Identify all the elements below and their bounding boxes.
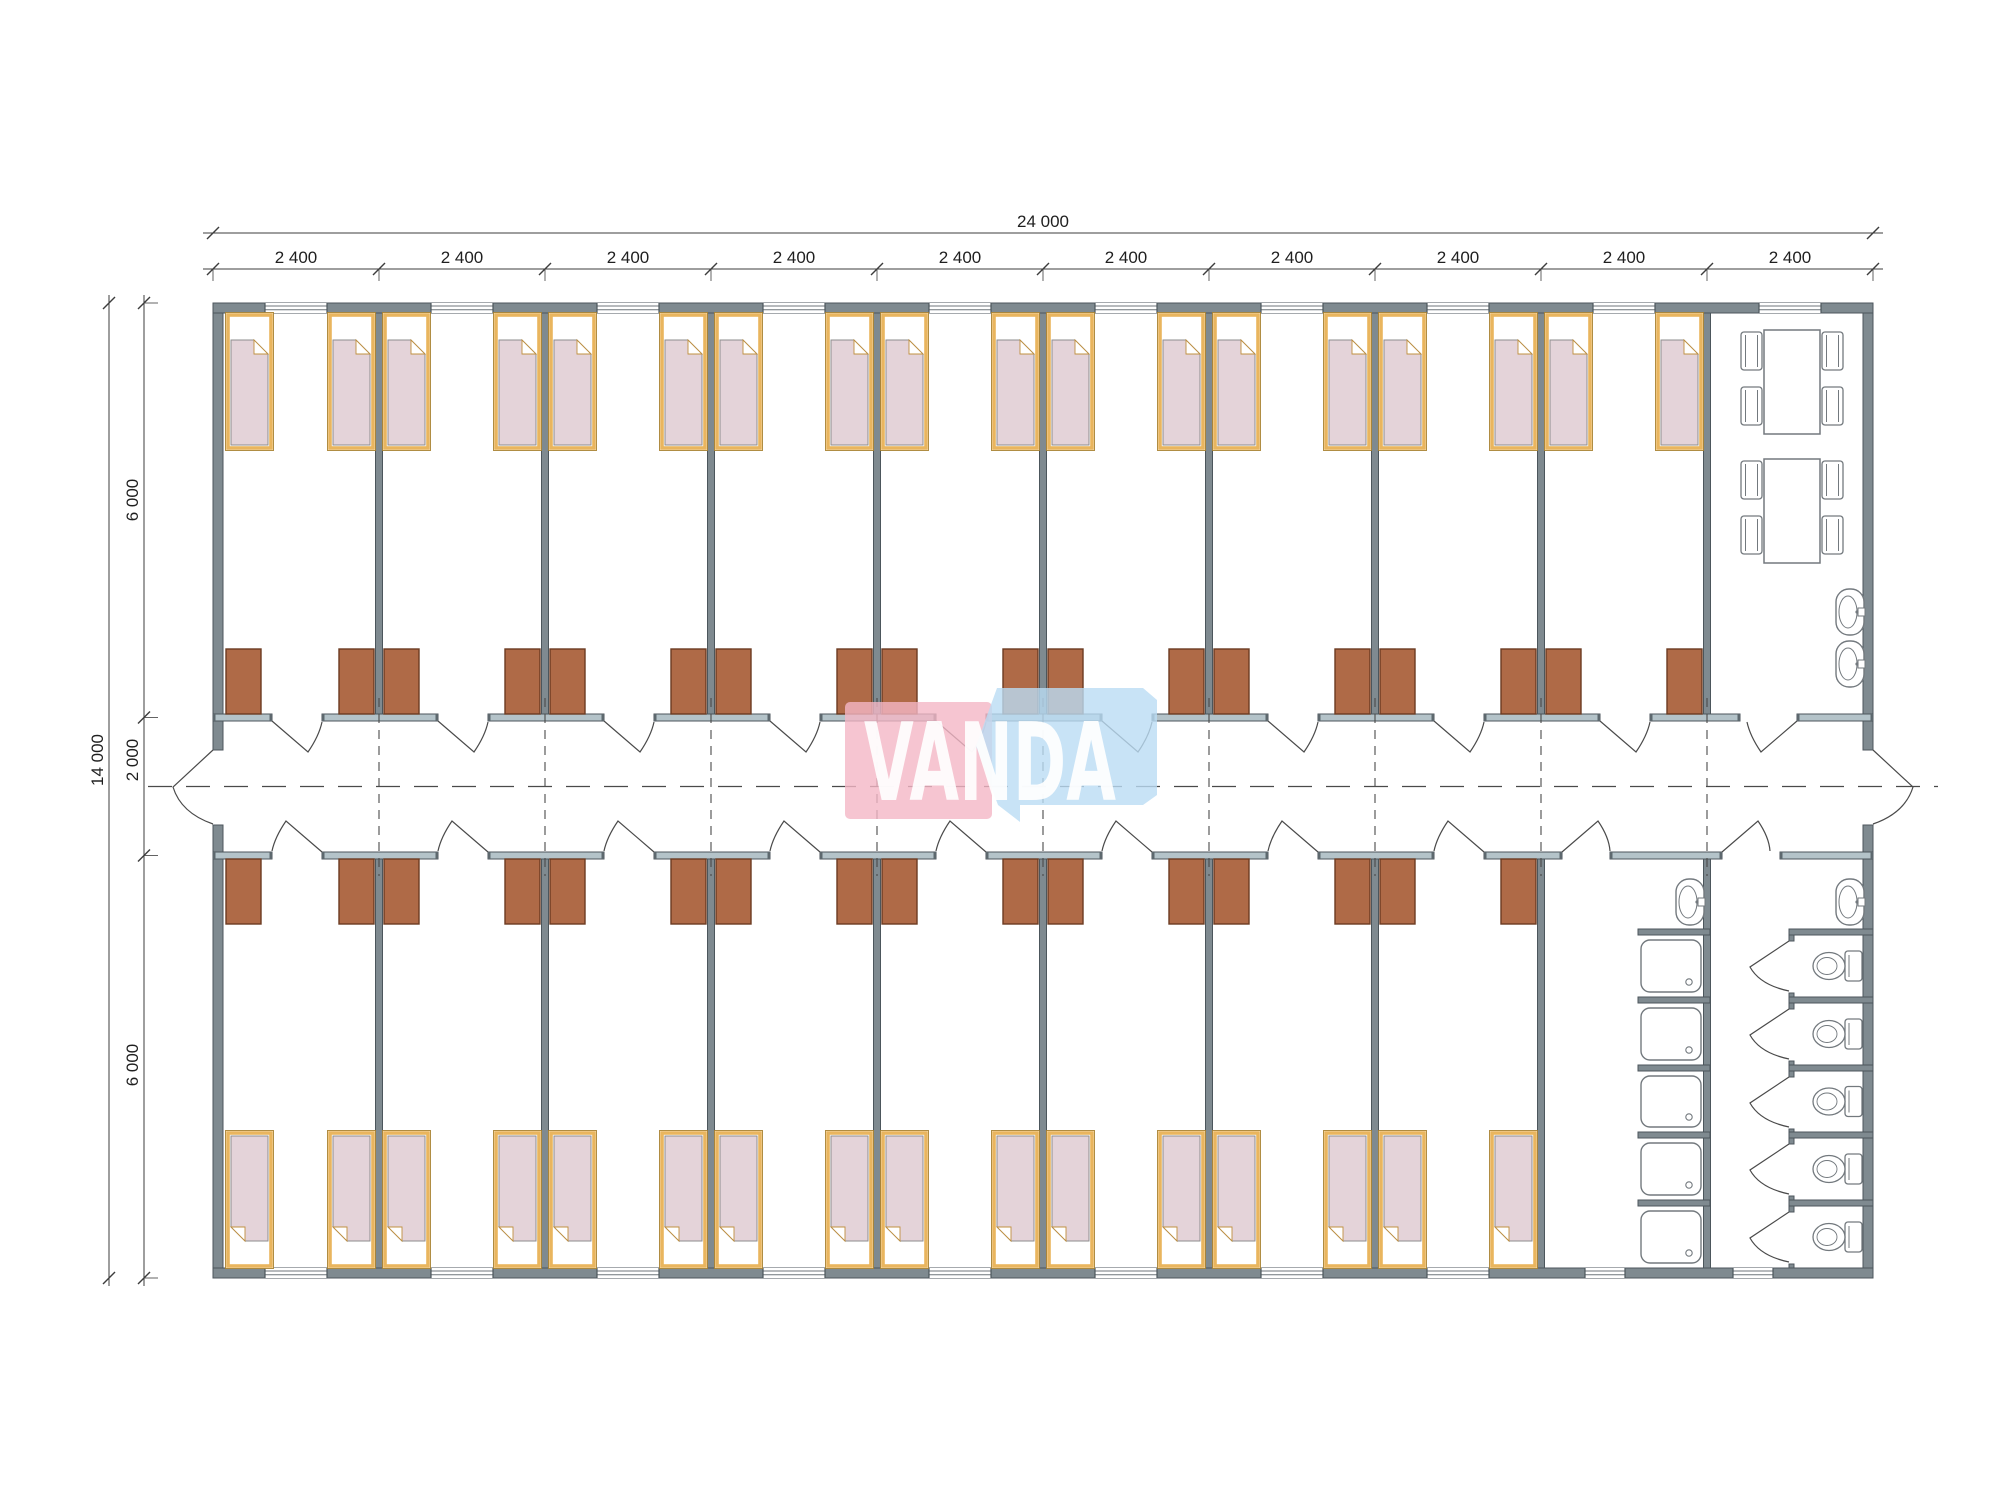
corridor-wall-top (1484, 714, 1600, 721)
chair (1741, 461, 1762, 499)
corridor-wall-bottom (1610, 852, 1722, 859)
wall-end-cap (1484, 852, 1487, 859)
corridor-wall-bottom (322, 852, 438, 859)
wardrobe (550, 649, 585, 714)
outer-wall-right (1863, 313, 1873, 750)
bed-top-row (660, 313, 708, 451)
chair (1741, 516, 1762, 554)
corridor-wall-bottom (488, 852, 604, 859)
chair (1741, 387, 1762, 425)
shower-tray (1641, 1143, 1701, 1195)
wall-end-cap (768, 714, 771, 721)
bed-blanket (665, 340, 702, 445)
wardrobe (384, 859, 419, 924)
window (763, 303, 825, 313)
bed-top-row (826, 313, 874, 451)
toilet-tank (1845, 951, 1862, 981)
partition-wall-bottom (542, 859, 549, 1268)
partition-wall-bottom (708, 859, 715, 1268)
toilet-stall-door-swing (1750, 1077, 1789, 1127)
washbasin (1836, 879, 1865, 925)
dimension-width-segment: 2 400 (1271, 248, 1314, 267)
logo-text: VANDA (864, 701, 1116, 826)
wardrobe (226, 859, 261, 924)
wall-end-cap (1780, 852, 1783, 859)
room-door-swing (770, 721, 820, 752)
window (1427, 1268, 1489, 1278)
bed-blanket (1218, 1136, 1255, 1241)
toilet (1813, 1087, 1862, 1117)
bed-top-row (549, 313, 597, 451)
shower-stall-wall (1638, 997, 1710, 1003)
bed-blanket (1495, 340, 1532, 445)
window (1261, 1268, 1323, 1278)
shower-room-wall (1704, 859, 1711, 1268)
bed-blanket (1052, 1136, 1089, 1241)
partition-wall-bottom (1372, 859, 1379, 1268)
toilet-tank (1845, 1087, 1862, 1117)
chair-seat (1741, 332, 1762, 370)
wardrobe (1335, 859, 1370, 924)
toilet-stall-jamb (1789, 993, 1794, 997)
bed-bottom-row (1213, 1131, 1261, 1269)
dining-table (1764, 459, 1820, 563)
window (1427, 303, 1489, 313)
bed-bottom-row (226, 1131, 274, 1269)
room-door-swing (1600, 721, 1650, 752)
dining-table (1764, 330, 1820, 434)
wall-end-cap (1560, 852, 1563, 859)
dimension-height-segment: 2 000 (123, 739, 142, 782)
wall-end-cap (1871, 714, 1874, 721)
wall-end-cap (654, 714, 657, 721)
bed-blanket (333, 1136, 370, 1241)
washbasin-faucet (1858, 608, 1865, 616)
dimension-width-segment: 2 400 (1769, 248, 1812, 267)
wall-end-cap (1266, 714, 1269, 721)
washbasin (1836, 589, 1865, 635)
wall-end-cap (602, 714, 605, 721)
toilet-stall-jamb (1789, 1264, 1794, 1268)
room-door-swing (1434, 721, 1484, 752)
bed-bottom-row (1047, 1131, 1095, 1269)
chair-seat (1741, 387, 1762, 425)
wall-end-cap (1797, 714, 1800, 721)
wall-end-cap (654, 852, 657, 859)
washbasin-faucet (1698, 898, 1705, 906)
chair-seat (1741, 461, 1762, 499)
wardrobe (716, 649, 751, 714)
wardrobe (384, 649, 419, 714)
bed-blanket (1495, 1136, 1532, 1241)
bed-bottom-row (660, 1131, 708, 1269)
dimension-width-segment: 2 400 (773, 248, 816, 267)
washbasin-faucet (1858, 660, 1865, 668)
wardrobe (1501, 649, 1536, 714)
toilet-room-door-swing (1722, 821, 1770, 852)
bed-blanket (1384, 340, 1421, 445)
wardrobe (1048, 859, 1083, 924)
shower-tray (1641, 1076, 1701, 1127)
shower-tray (1641, 940, 1701, 992)
bed-top-row (881, 313, 929, 451)
room-door-swing (1434, 821, 1484, 852)
window (1733, 1268, 1773, 1278)
corridor-wall-top (654, 714, 770, 721)
partition-wall-bottom (376, 859, 383, 1268)
chair (1822, 516, 1843, 554)
bed-blanket (231, 340, 268, 445)
bed-blanket (1384, 1136, 1421, 1241)
partition-wall-top (542, 313, 549, 714)
corridor-wall-bottom (820, 852, 936, 859)
wall-end-cap (986, 852, 989, 859)
partition-wall-top (708, 313, 715, 714)
bed-blanket (831, 1136, 868, 1241)
bed-blanket (997, 1136, 1034, 1241)
washbasin-faucet (1858, 898, 1865, 906)
corridor-wall-top (1650, 714, 1740, 721)
bed-blanket (388, 1136, 425, 1241)
wall-end-cap (934, 852, 937, 859)
toilet-stall-jamb (1789, 1071, 1794, 1077)
toilet (1813, 951, 1862, 981)
toilet-stall-jamb (1789, 1061, 1794, 1065)
floor-plan-drawing: 24 0002 4002 4002 4002 4002 4002 4002 40… (0, 0, 2000, 1508)
window (1261, 303, 1323, 313)
window (1095, 1268, 1157, 1278)
bed-top-row (1545, 313, 1593, 451)
wardrobe (1214, 859, 1249, 924)
window (265, 1268, 327, 1278)
window (1759, 303, 1821, 313)
wall-end-cap (820, 714, 823, 721)
corridor-wall-bottom (986, 852, 1102, 859)
shower-tray-rim (1641, 1076, 1701, 1127)
room-door-swing (604, 821, 654, 852)
partition-wall-top (376, 313, 383, 714)
chair (1741, 332, 1762, 370)
bed-blanket (554, 1136, 591, 1241)
window (1585, 1268, 1625, 1278)
toilet-tank (1845, 1222, 1862, 1252)
wardrobe (882, 859, 917, 924)
corridor-wall-top (1797, 714, 1873, 721)
dimension-height-segment: 6 000 (123, 1044, 142, 1087)
partition-wall-bottom (874, 859, 881, 1268)
wall-end-cap (1720, 852, 1723, 859)
wall-end-cap (1100, 852, 1103, 859)
partition-wall-top (1206, 313, 1213, 714)
corridor-wall-top (1318, 714, 1434, 721)
bed-bottom-row (1324, 1131, 1372, 1269)
wardrobe (1501, 859, 1536, 924)
partition-wall-top (1704, 313, 1711, 714)
corridor-wall-top (1152, 714, 1268, 721)
toilet-stall-jamb (1789, 1138, 1794, 1144)
bed-blanket (1329, 1136, 1366, 1241)
partition-wall-top (874, 313, 881, 714)
toilet-bowl (1813, 1224, 1845, 1251)
wardrobe (226, 649, 261, 714)
bed-blanket (997, 340, 1034, 445)
chair-seat (1822, 516, 1843, 554)
dimension-width-segment: 2 400 (1105, 248, 1148, 267)
corridor-wall-bottom (213, 852, 272, 859)
dimension-width-segment: 2 400 (1437, 248, 1480, 267)
bed-blanket (665, 1136, 702, 1241)
chair (1822, 387, 1843, 425)
bed-blanket (499, 1136, 536, 1241)
bed-blanket (886, 1136, 923, 1241)
partition-wall-bottom (1206, 859, 1213, 1268)
room-door-swing (1268, 721, 1318, 752)
wall-end-cap (1610, 852, 1613, 859)
wardrobe (550, 859, 585, 924)
wardrobe (1380, 859, 1415, 924)
wall-end-cap (1598, 714, 1601, 721)
bed-top-row (1379, 313, 1427, 451)
wall-end-cap (213, 714, 216, 721)
dimension-total-width: 24 000 (1017, 212, 1069, 231)
toilet-stall-wall (1789, 1132, 1873, 1138)
bed-bottom-row (1379, 1131, 1427, 1269)
wall-end-cap (436, 714, 439, 721)
room-door-swing (438, 821, 488, 852)
window (1593, 303, 1655, 313)
room-door-swing (272, 821, 322, 852)
corridor-wall-bottom (654, 852, 770, 859)
corridor-wall-bottom (1318, 852, 1434, 859)
toilet-stall-jamb (1789, 1196, 1794, 1200)
dimension-width-segment: 2 400 (275, 248, 318, 267)
shower-tray (1641, 1211, 1701, 1263)
toilet-tank (1845, 1154, 1862, 1184)
shower-stall-wall (1638, 1132, 1710, 1138)
wardrobe (1169, 859, 1204, 924)
window (597, 1268, 659, 1278)
bed-top-row (383, 313, 431, 451)
bed-blanket (831, 340, 868, 445)
wall-end-cap (1266, 852, 1269, 859)
bed-bottom-row (494, 1131, 542, 1269)
bed-bottom-row (1158, 1131, 1206, 1269)
bed-top-row (328, 313, 376, 451)
wall-end-cap (1432, 714, 1435, 721)
corridor-wall-bottom (1780, 852, 1873, 859)
bed-blanket (499, 340, 536, 445)
bed-bottom-row (549, 1131, 597, 1269)
toilet (1813, 1154, 1862, 1184)
window (763, 1268, 825, 1278)
shower-stall-wall (1638, 929, 1710, 935)
toilet-stall-wall (1789, 929, 1873, 935)
wall-end-cap (1318, 714, 1321, 721)
wall-end-cap (1650, 714, 1653, 721)
bed-blanket (388, 340, 425, 445)
room-door-swing (438, 721, 488, 752)
wardrobe (837, 859, 872, 924)
wall-end-cap (213, 852, 216, 859)
chair (1822, 461, 1843, 499)
dining-layer (1741, 330, 1843, 563)
bed-bottom-row (992, 1131, 1040, 1269)
window (265, 303, 327, 313)
washbasin (1676, 879, 1705, 925)
wardrobe (505, 649, 540, 714)
wardrobe (339, 649, 374, 714)
toilet-stall-door-swing (1750, 1009, 1789, 1059)
toilet-stall-door-swing (1750, 1212, 1789, 1262)
dining-door-swing (1747, 721, 1797, 752)
window (929, 303, 991, 313)
wardrobe (505, 859, 540, 924)
wall-end-cap (820, 852, 823, 859)
wardrobe (1335, 649, 1370, 714)
chair (1822, 332, 1843, 370)
washbasin-drain (1855, 900, 1858, 903)
wardrobe (339, 859, 374, 924)
washbasin-drain (1855, 610, 1858, 613)
corridor-wall-top (488, 714, 604, 721)
shower-stall-wall (1638, 1065, 1710, 1071)
dimension-width-segment: 2 400 (441, 248, 484, 267)
wall-end-cap (436, 852, 439, 859)
wardrobe (1214, 649, 1249, 714)
bed-blanket (554, 340, 591, 445)
chair-seat (1822, 461, 1843, 499)
bed-blanket (1550, 340, 1587, 445)
bed-bottom-row (383, 1131, 431, 1269)
outer-wall-left (213, 313, 223, 750)
toilet-stall-jamb (1789, 1206, 1794, 1212)
bed-top-row (226, 313, 274, 451)
bed-bottom-row (328, 1131, 376, 1269)
wall-end-cap (322, 852, 325, 859)
bed-top-row (494, 313, 542, 451)
wall-end-cap (602, 852, 605, 859)
partition-wall-top (1538, 313, 1545, 714)
toilet-stall-door-swing (1750, 1144, 1789, 1194)
bed-blanket (333, 340, 370, 445)
dimension-total-height: 14 000 (88, 734, 107, 786)
wardrobe (671, 859, 706, 924)
window (431, 303, 493, 313)
shower-stall-wall (1638, 1200, 1710, 1206)
washbasin-drain (1855, 662, 1858, 665)
bed-blanket (720, 340, 757, 445)
wall-end-cap (1738, 714, 1741, 721)
bed-bottom-row (881, 1131, 929, 1269)
toilet-stall-jamb (1789, 1003, 1794, 1009)
room-door-swing (604, 721, 654, 752)
bed-top-row (1656, 313, 1704, 451)
wardrobe (1546, 649, 1581, 714)
bed-blanket (1163, 1136, 1200, 1241)
wall-end-cap (1484, 714, 1487, 721)
bed-blanket (231, 1136, 268, 1241)
bed-blanket (886, 340, 923, 445)
toilet-stall-wall (1789, 1065, 1873, 1071)
bed-blanket (1661, 340, 1698, 445)
toilet-stall-door-swing (1750, 941, 1789, 991)
dimension-width-segment: 2 400 (939, 248, 982, 267)
partition-wall-bottom (1538, 859, 1545, 1268)
bed-blanket (1329, 340, 1366, 445)
dimension-width-segment: 2 400 (1603, 248, 1646, 267)
bed-top-row (1047, 313, 1095, 451)
wall-end-cap (322, 714, 325, 721)
wall-end-cap (1318, 852, 1321, 859)
wardrobe (671, 649, 706, 714)
toilet-bowl (1813, 953, 1845, 980)
toilet (1813, 1222, 1862, 1252)
logo-watermark: VANDA (845, 688, 1157, 826)
bed-top-row (1213, 313, 1261, 451)
floorplan-page: 24 0002 4002 4002 4002 4002 4002 4002 40… (0, 0, 2000, 1508)
washbasin-drain (1695, 900, 1698, 903)
bed-top-row (1324, 313, 1372, 451)
bed-top-row (1490, 313, 1538, 451)
chair-seat (1822, 387, 1843, 425)
corridor-wall-bottom (1152, 852, 1268, 859)
bed-blanket (1218, 340, 1255, 445)
wall-end-cap (1152, 852, 1155, 859)
toilet-bowl (1813, 1021, 1845, 1048)
room-door-swing (1268, 821, 1318, 852)
wardrobe (1003, 859, 1038, 924)
toilet-bowl (1813, 1156, 1845, 1183)
wall-end-cap (488, 852, 491, 859)
wall-end-cap (270, 852, 273, 859)
bed-top-row (992, 313, 1040, 451)
wall-end-cap (768, 852, 771, 859)
toilet-stall-wall (1789, 1200, 1873, 1206)
corridor-wall-top (213, 714, 272, 721)
toilet-stall-jamb (1789, 935, 1794, 941)
bed-top-row (1158, 313, 1206, 451)
toilet-stall-wall (1789, 997, 1873, 1003)
window (431, 1268, 493, 1278)
toilet-bowl (1813, 1088, 1845, 1115)
wall-end-cap (1432, 852, 1435, 859)
toilet (1813, 1019, 1862, 1049)
partition-wall-top (1040, 313, 1047, 714)
window (929, 1268, 991, 1278)
wardrobe (716, 859, 751, 924)
window (597, 303, 659, 313)
bed-bottom-row (826, 1131, 874, 1269)
room-door-swing (770, 821, 820, 852)
chair-seat (1741, 516, 1762, 554)
washbasin (1836, 641, 1865, 687)
shower-tray (1641, 1008, 1701, 1060)
bed-top-row (715, 313, 763, 451)
toilet-tank (1845, 1019, 1862, 1049)
dimension-height-segment: 6 000 (123, 479, 142, 522)
wall-end-cap (270, 714, 273, 721)
outer-wall-left (213, 825, 223, 1268)
wardrobe (1380, 649, 1415, 714)
chair-seat (1822, 332, 1843, 370)
wardrobe (1667, 649, 1702, 714)
shower-room-door-swing (1562, 821, 1610, 852)
corridor-wall-top (322, 714, 438, 721)
partition-wall-bottom (1040, 859, 1047, 1268)
bed-blanket (1163, 340, 1200, 445)
dimension-width-segment: 2 400 (607, 248, 650, 267)
bed-bottom-row (1490, 1131, 1538, 1269)
